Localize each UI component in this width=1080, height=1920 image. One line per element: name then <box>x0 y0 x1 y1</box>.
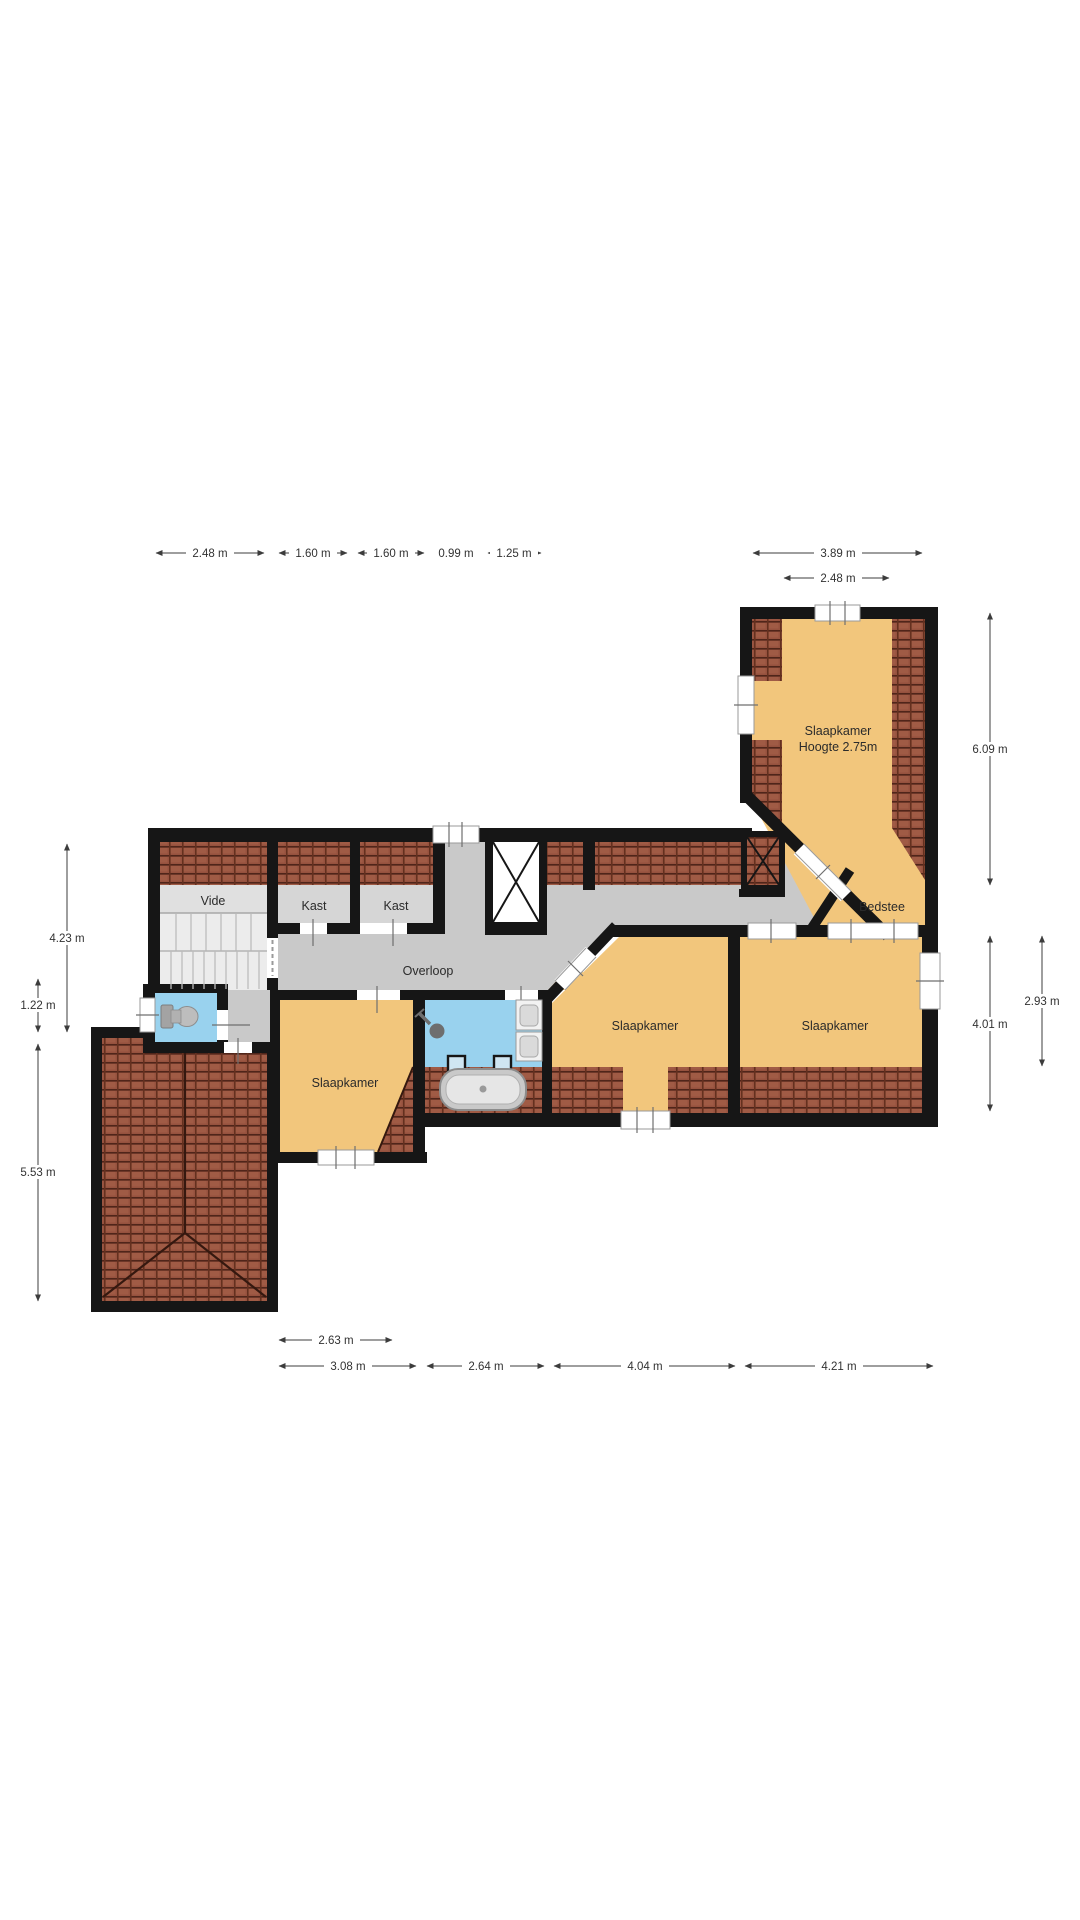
dim-top-2: 1.60 m <box>295 548 330 560</box>
wall-left-main <box>148 828 160 990</box>
overloop-north-branch <box>445 842 485 934</box>
wall-mid-east-divider <box>728 925 740 1127</box>
dim-bottom-2: 3.08 m <box>330 1361 365 1373</box>
label-kast-2: Kast <box>383 899 409 913</box>
overloop-east-strip <box>547 885 743 927</box>
wall-kast2-east <box>433 842 445 934</box>
dim-right-2: 4.01 m <box>972 1019 1007 1031</box>
overloop-floor <box>278 934 547 990</box>
roof-block-southwest <box>91 1027 278 1312</box>
dim-bottom-4: 4.04 m <box>627 1361 662 1373</box>
hatch-above-kast1 <box>278 842 350 885</box>
dim-topright-2: 2.48 m <box>820 573 855 585</box>
sink-icon-2 <box>516 1032 542 1061</box>
floor-plan-page: Slaapkamer Hoogte 2.75m Bedstee Vide Kas… <box>0 0 1080 1920</box>
wall-windowed-a <box>613 925 748 937</box>
window-wing-north <box>815 601 860 625</box>
wall-shaft-east <box>583 842 595 890</box>
chimney-box <box>741 831 785 891</box>
hatch-mid-room-south-b <box>668 1067 728 1113</box>
dim-top-4: 0.99 m <box>438 548 473 560</box>
dim-right-3: 2.93 m <box>1024 996 1059 1008</box>
dim-right-1: 6.09 m <box>972 744 1007 756</box>
hatch-above-kast2 <box>360 842 433 885</box>
dim-top-5: 1.25 m <box>496 548 531 560</box>
label-slaapkamer-top: Slaapkamer <box>805 724 872 738</box>
wall-bath-south <box>413 1113 554 1127</box>
label-slaapkamer-east: Slaapkamer <box>802 1019 869 1033</box>
wall-corridor-south-a <box>270 990 357 1000</box>
wall-kast-divider <box>350 842 360 923</box>
wall-vide-east-b <box>267 978 278 990</box>
window-mid-room-south <box>621 1107 670 1133</box>
label-kast-1: Kast <box>301 899 327 913</box>
hatch-east-room-south <box>740 1067 922 1113</box>
dim-top-1: 2.48 m <box>192 548 227 560</box>
dim-left-3: 5.53 m <box>20 1167 55 1179</box>
hatch-wing-upper-left <box>752 619 782 681</box>
dim-left-1: 4.23 m <box>49 933 84 945</box>
label-slaapkamer-mid: Slaapkamer <box>612 1019 679 1033</box>
sink-icon <box>516 1000 542 1030</box>
window-top-wall <box>433 822 479 847</box>
dim-top-3: 1.60 m <box>373 548 408 560</box>
wall-east-room-south <box>737 1113 938 1127</box>
wall-corridor-north-a <box>278 923 300 934</box>
dim-left-2: 1.22 m <box>20 1000 55 1012</box>
label-vide: Vide <box>201 894 226 908</box>
label-slaapkamer-west: Slaapkamer <box>312 1076 379 1090</box>
window-corridor-south-a <box>748 919 796 943</box>
wall-vide-east-a <box>267 842 278 938</box>
wall-corridor-north-c <box>407 923 445 934</box>
window-bedstee-south <box>828 919 918 943</box>
wall-toilet-north <box>148 984 228 993</box>
dim-topright-1: 3.89 m <box>820 548 855 560</box>
label-slaapkamer-top-height: Hoogte 2.75m <box>799 740 878 754</box>
hatch-above-vide <box>160 842 267 885</box>
dim-bottom-5: 4.21 m <box>821 1361 856 1373</box>
hall-by-toilet <box>228 984 270 1042</box>
wall-corridor-north-b <box>327 923 360 934</box>
hatch-mid-room-south-a <box>552 1067 623 1113</box>
floor-plan-svg: Slaapkamer Hoogte 2.75m Bedstee Vide Kas… <box>0 0 1080 1920</box>
shaft-x <box>485 832 547 935</box>
dim-bottom-1: 2.63 m <box>318 1335 353 1347</box>
hatch-mid-2 <box>595 842 743 885</box>
window-wing-west <box>734 676 758 734</box>
wall-wing-east <box>925 607 938 927</box>
window-east-room-east <box>916 953 944 1009</box>
dim-bottom-3: 2.64 m <box>468 1361 503 1373</box>
wall-west-room-west <box>270 990 280 1162</box>
wall-bath-east <box>542 990 552 1127</box>
label-bedstee: Bedstee <box>859 900 905 914</box>
label-overloop: Overloop <box>403 964 454 978</box>
hatch-mid-1 <box>547 842 583 885</box>
